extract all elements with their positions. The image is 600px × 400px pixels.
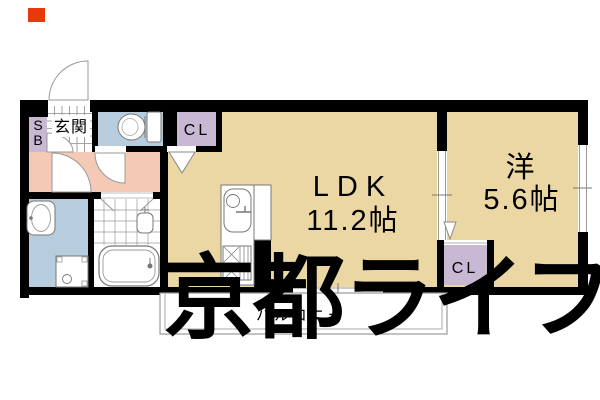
closet-ldk-label: CL: [184, 122, 210, 139]
wall-divider-top: [437, 100, 447, 151]
toilet-icon: [118, 112, 161, 142]
closet-ldk-opening: [167, 146, 196, 152]
wall-toilet-closet: [163, 100, 177, 152]
western-room-size: 5.6帖: [483, 183, 560, 216]
wall-entrance-toilet: [92, 100, 98, 152]
shoe-box-label-b: B: [33, 132, 42, 148]
ldk-room-label: LDK: [313, 171, 393, 203]
entrance-label: 玄関: [54, 118, 88, 136]
floor-plan-page: S B 玄関 CL CL LDK 11.2帖 洋 5.6帖 バルコニー 京都ライ…: [0, 0, 600, 400]
wall-closet-right: [216, 100, 222, 152]
wall-bathroom-left: [88, 199, 94, 287]
shoe-box-label-s: S: [33, 117, 42, 133]
wall-washroom-top: [20, 192, 101, 199]
wall-toilet-bottom: [126, 146, 163, 152]
hallway-floor: [29, 152, 160, 192]
watermark-text: 京都ライフ: [163, 248, 600, 350]
toilet-door-opening: [95, 146, 126, 153]
floor-plan-canvas: S B 玄関 CL CL LDK 11.2帖 洋 5.6帖 バルコニー 京都ライ…: [0, 0, 600, 400]
western-room-label: 洋: [505, 151, 534, 184]
washer-pan-icon: [56, 256, 88, 287]
vanity-sink-icon: [27, 201, 55, 235]
kitchen-sink-icon: [224, 189, 251, 232]
red-marker: [28, 8, 45, 22]
closet-western-opening: [444, 240, 487, 245]
ldk-room-size: 11.2帖: [306, 204, 399, 237]
bathtub-icon: [99, 246, 159, 286]
